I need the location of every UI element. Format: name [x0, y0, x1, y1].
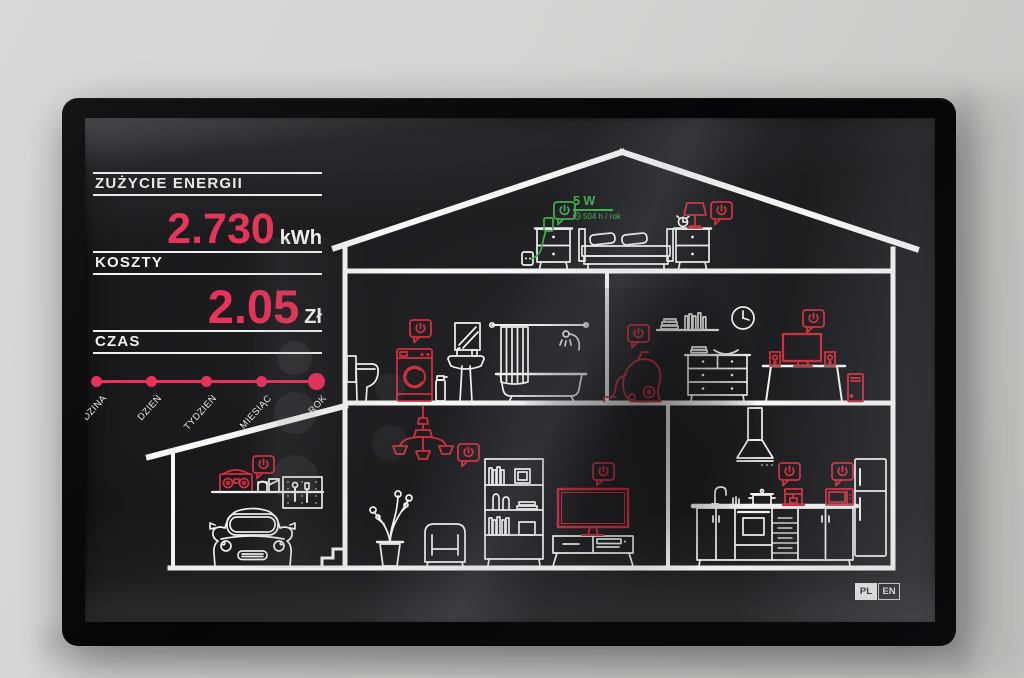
language-toggle[interactable]: PL EN [855, 583, 900, 600]
room-bathroom [347, 320, 588, 402]
toilet-icon [347, 356, 378, 402]
room-living-ground [370, 406, 633, 566]
mirror-icon [455, 323, 480, 350]
bed-icon [579, 229, 673, 269]
cost-value: 2.05 [208, 287, 299, 327]
chandelier-icon [393, 406, 453, 459]
tv-living-room-icon [558, 489, 628, 535]
coffee-maker-icon [783, 489, 804, 505]
device-power: 5 W [573, 195, 621, 207]
language-en-button[interactable]: EN [878, 583, 900, 600]
energy-value: 2.730 [167, 211, 275, 248]
bathtub-icon [496, 374, 586, 402]
boombox-icon [220, 470, 252, 492]
stats-panel: ZUŻYCIE ENERGII 2.730 kWh KOSZTY 2.05 Zł… [93, 172, 322, 418]
power-callout-tv-living-room-icon[interactable] [593, 463, 614, 486]
power-callout-bedside-lamp-icon[interactable] [711, 202, 732, 225]
sink-icon [448, 348, 484, 402]
bookcase-icon [485, 459, 543, 566]
slider-dot-tydzien[interactable] [201, 376, 212, 387]
kitchen-cabinets-icon [697, 508, 853, 566]
potted-plant-icon [370, 491, 412, 566]
device-usage: 504 h / rok [583, 212, 621, 221]
chest-of-drawers-icon [685, 347, 750, 402]
steps [322, 549, 345, 566]
room-bedroom [522, 202, 732, 269]
range-hood-icon [737, 408, 773, 466]
time-range-slider[interactable]: GODZINA DZIEŃ TYDZIEŃ MIESIĄC ROK [93, 356, 322, 418]
vacuum-cleaner-icon [604, 352, 661, 402]
slider-dot-dzien[interactable] [146, 376, 157, 387]
device-callout: 5 W 504 h / rok [573, 195, 621, 221]
cost-value-row: 2.05 Zł [93, 275, 322, 330]
speaker-left-icon [770, 352, 780, 366]
divider [93, 352, 322, 354]
power-callout-tv-upstairs-icon[interactable] [803, 310, 824, 333]
dashboard-screen: ZUŻYCIE ENERGII 2.730 kWh KOSZTY 2.05 Zł… [85, 118, 935, 622]
wall-shadow [952, 90, 1024, 678]
power-callout-boombox-icon[interactable] [253, 456, 274, 479]
room-garage [210, 456, 323, 566]
wall-shelf-icon [657, 313, 718, 330]
wall-clock-icon [732, 307, 754, 329]
cost-label: KOSZTY [93, 253, 322, 273]
car-icon [210, 509, 295, 567]
shower-head-icon [560, 331, 579, 350]
microwave-icon [826, 489, 853, 505]
photo-of-wall-display: ZUŻYCIE ENERGII 2.730 kWh KOSZTY 2.05 Zł… [0, 0, 1024, 678]
room-kitchen [693, 408, 886, 566]
power-callout-washing-machine-icon[interactable] [410, 320, 431, 343]
alarm-clock-icon [677, 216, 689, 227]
monitor-bezel: ZUŻYCIE ENERGII 2.730 kWh KOSZTY 2.05 Zł… [62, 98, 956, 646]
tv-table-icon [763, 366, 845, 402]
language-pl-button[interactable]: PL [855, 583, 877, 600]
washing-machine-icon [397, 349, 432, 401]
energy-unit: kWh [280, 228, 322, 248]
slider-dot-miesiac[interactable] [256, 376, 267, 387]
energy-label: ZUŻYCIE ENERGII [93, 174, 322, 194]
pc-tower-icon [848, 374, 863, 402]
time-label: CZAS [93, 332, 322, 352]
nightstand-right-icon [674, 229, 711, 270]
armchair-icon [425, 524, 465, 566]
slider-dot-godzina[interactable] [91, 376, 102, 387]
fridge-icon [855, 459, 886, 556]
tv-upstairs-icon [783, 334, 821, 366]
speaker-right-icon [825, 352, 835, 366]
power-callout-vacuum-icon[interactable] [628, 325, 649, 348]
room-living-upstairs [604, 307, 863, 402]
clock-icon [573, 212, 581, 220]
roof-right [622, 152, 916, 249]
power-callout-microwave-icon[interactable] [832, 463, 853, 486]
energy-value-row: 2.730 kWh [93, 196, 322, 251]
faucet-icon [712, 487, 739, 504]
callout-divider [573, 209, 613, 211]
bowl-icon [714, 350, 738, 354]
cost-unit: Zł [304, 307, 322, 327]
power-callout-chandelier-icon[interactable] [458, 444, 479, 467]
power-callout-phone-charger-icon[interactable] [554, 202, 575, 225]
tv-cabinet-icon [553, 536, 633, 566]
cooking-pot-icon [749, 490, 775, 506]
slider-dot-rok-selected[interactable] [308, 373, 325, 390]
power-callout-coffee-maker-icon[interactable] [779, 463, 800, 486]
device-usage-row: 504 h / rok [573, 212, 621, 221]
paint-cans-icon [258, 479, 279, 492]
spray-bottle-icon [436, 376, 447, 401]
